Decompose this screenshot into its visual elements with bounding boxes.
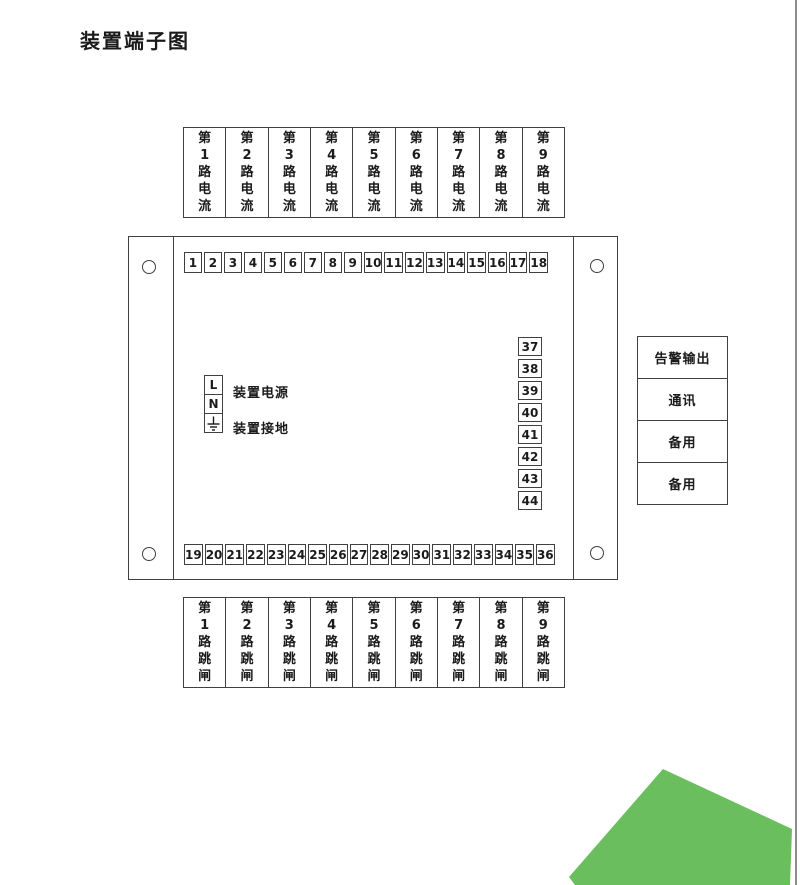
trip-channel-box: 第 9 路 跳 闸: [522, 598, 564, 687]
green-polygon: [569, 769, 792, 885]
terminal-cell: 33: [474, 544, 493, 565]
ground-icon: [205, 415, 222, 432]
terminal-cell: 6: [284, 252, 302, 273]
terminal-cell: 43: [518, 469, 542, 488]
current-channel-box: 第 1 路 电 流: [184, 128, 225, 217]
terminal-cell: 36: [536, 544, 555, 565]
terminal-cell: 40: [518, 403, 542, 422]
current-channel-box: 第 8 路 电 流: [479, 128, 521, 217]
trip-channel-row: 第 1 路 跳 闸第 2 路 跳 闸第 3 路 跳 闸第 4 路 跳 闸第 5 …: [183, 597, 565, 688]
terminal-cell: 20: [205, 544, 224, 565]
green-corner-graphic: [560, 760, 800, 885]
terminal-cell: 32: [453, 544, 472, 565]
page-title: 装置端子图: [80, 25, 190, 54]
current-channel-box: 第 2 路 电 流: [225, 128, 267, 217]
terminal-cell: 10: [364, 252, 383, 273]
terminal-cell: 7: [304, 252, 322, 273]
terminal-cell: 28: [370, 544, 389, 565]
terminal-cell: 11: [384, 252, 403, 273]
terminal-cell: 42: [518, 447, 542, 466]
terminal-cell: 9: [344, 252, 362, 273]
terminal-cell: 1: [184, 252, 202, 273]
terminal-cell: 41: [518, 425, 542, 444]
current-channel-box: 第 5 路 电 流: [352, 128, 394, 217]
mounting-hole-icon: [142, 260, 156, 274]
terminal-cell: 31: [432, 544, 451, 565]
terminal-cell: 44: [518, 491, 542, 510]
top-terminal-strip: 123456789101112131415161718: [184, 252, 548, 273]
terminal-cell: 13: [426, 252, 445, 273]
document-page: 装置端子图 第 1 路 电 流第 2 路 电 流第 3 路 电 流第 4 路 电…: [0, 0, 800, 885]
device-outline: [128, 236, 618, 580]
terminal-cell: 2: [204, 252, 222, 273]
terminal-cell: 26: [329, 544, 348, 565]
trip-channel-box: 第 6 路 跳 闸: [395, 598, 437, 687]
terminal-cell: 24: [288, 544, 307, 565]
terminal-cell: 8: [324, 252, 342, 273]
terminal-cell: 25: [308, 544, 327, 565]
terminal-cell: 4: [244, 252, 262, 273]
terminal-cell: 39: [518, 381, 542, 400]
terminal-cell: 3: [224, 252, 242, 273]
terminal-cell: 12: [405, 252, 424, 273]
terminal-cell: 23: [267, 544, 286, 565]
current-channel-box: 第 6 路 电 流: [395, 128, 437, 217]
trip-channel-box: 第 1 路 跳 闸: [184, 598, 225, 687]
ground-label: 装置接地: [233, 418, 289, 437]
current-channel-box: 第 9 路 电 流: [522, 128, 564, 217]
right-ear-divider: [573, 237, 574, 579]
terminal-cell: 30: [412, 544, 431, 565]
trip-channel-box: 第 4 路 跳 闸: [310, 598, 352, 687]
left-ear-divider: [173, 237, 174, 579]
bottom-terminal-strip: 192021222324252627282930313233343536: [184, 544, 548, 565]
terminal-cell: 16: [488, 252, 507, 273]
function-box: 备用: [638, 420, 727, 462]
trip-channel-box: 第 3 路 跳 闸: [268, 598, 310, 687]
trip-channel-box: 第 2 路 跳 闸: [225, 598, 267, 687]
terminal-cell: 19: [184, 544, 203, 565]
terminal-cell: 21: [225, 544, 244, 565]
trip-channel-box: 第 5 路 跳 闸: [352, 598, 394, 687]
terminal-cell: 17: [509, 252, 528, 273]
right-terminal-strip: 3738394041424344: [518, 337, 542, 510]
terminal-cell: 34: [495, 544, 514, 565]
power-label: 装置电源: [233, 382, 289, 401]
terminal-cell: 27: [350, 544, 369, 565]
current-channel-box: 第 4 路 电 流: [310, 128, 352, 217]
neutral-terminal: N: [204, 394, 223, 414]
current-channel-row: 第 1 路 电 流第 2 路 电 流第 3 路 电 流第 4 路 电 流第 5 …: [183, 127, 565, 218]
terminal-cell: 18: [529, 252, 548, 273]
line-terminal: L: [204, 375, 223, 395]
terminal-cell: 38: [518, 359, 542, 378]
trip-channel-box: 第 7 路 跳 闸: [437, 598, 479, 687]
ground-terminal: [204, 413, 223, 433]
terminal-cell: 5: [264, 252, 282, 273]
terminal-cell: 37: [518, 337, 542, 356]
function-box: 备用: [638, 462, 727, 504]
function-box: 通讯: [638, 378, 727, 420]
current-channel-box: 第 3 路 电 流: [268, 128, 310, 217]
page-edge-line: [795, 0, 797, 885]
terminal-cell: 22: [246, 544, 265, 565]
mounting-hole-icon: [142, 547, 156, 561]
terminal-cell: 29: [391, 544, 410, 565]
function-box: 告警输出: [638, 337, 727, 378]
current-channel-box: 第 7 路 电 流: [437, 128, 479, 217]
terminal-cell: 35: [515, 544, 534, 565]
terminal-cell: 14: [447, 252, 466, 273]
mounting-hole-icon: [590, 259, 604, 273]
trip-channel-box: 第 8 路 跳 闸: [479, 598, 521, 687]
power-terminal-stack: L N: [204, 375, 223, 433]
terminal-cell: 15: [467, 252, 486, 273]
function-panel: 告警输出通讯备用备用: [637, 336, 728, 505]
mounting-hole-icon: [590, 546, 604, 560]
